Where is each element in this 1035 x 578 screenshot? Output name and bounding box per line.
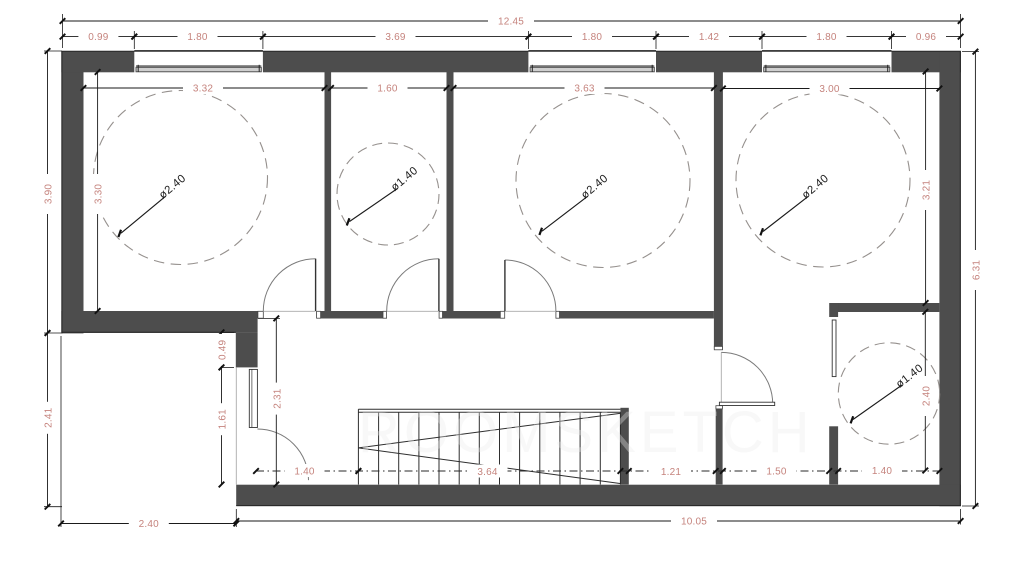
svg-text:10.05: 10.05	[681, 517, 707, 528]
svg-text:3.63: 3.63	[574, 84, 595, 95]
svg-text:1.40: 1.40	[294, 467, 315, 478]
svg-text:1.80: 1.80	[187, 32, 208, 43]
svg-text:1.21: 1.21	[661, 467, 682, 478]
svg-text:3.90: 3.90	[44, 184, 55, 205]
svg-text:3.64: 3.64	[477, 467, 498, 478]
svg-text:2.40: 2.40	[921, 386, 932, 407]
svg-text:12.45: 12.45	[498, 17, 524, 28]
svg-text:1.42: 1.42	[699, 32, 720, 43]
svg-text:3.69: 3.69	[385, 32, 406, 43]
svg-text:0.99: 0.99	[88, 32, 109, 43]
svg-text:3.00: 3.00	[819, 84, 840, 95]
svg-text:1.60: 1.60	[377, 84, 398, 95]
svg-text:ROOMSKETCH: ROOMSKETCH	[358, 400, 814, 465]
svg-text:2.31: 2.31	[272, 388, 283, 409]
svg-text:6.31: 6.31	[971, 260, 982, 281]
svg-text:1.50: 1.50	[766, 467, 787, 478]
svg-text:1.80: 1.80	[816, 32, 837, 43]
svg-text:2.41: 2.41	[44, 407, 55, 428]
svg-text:3.21: 3.21	[922, 180, 933, 201]
svg-text:1.40: 1.40	[872, 466, 893, 477]
svg-text:3.30: 3.30	[94, 184, 105, 205]
svg-text:1.80: 1.80	[582, 32, 603, 43]
svg-text:0.96: 0.96	[916, 32, 937, 43]
svg-text:3.32: 3.32	[193, 84, 214, 95]
svg-text:0.49: 0.49	[218, 340, 229, 361]
svg-text:1.61: 1.61	[218, 409, 229, 430]
svg-text:2.40: 2.40	[139, 519, 160, 530]
